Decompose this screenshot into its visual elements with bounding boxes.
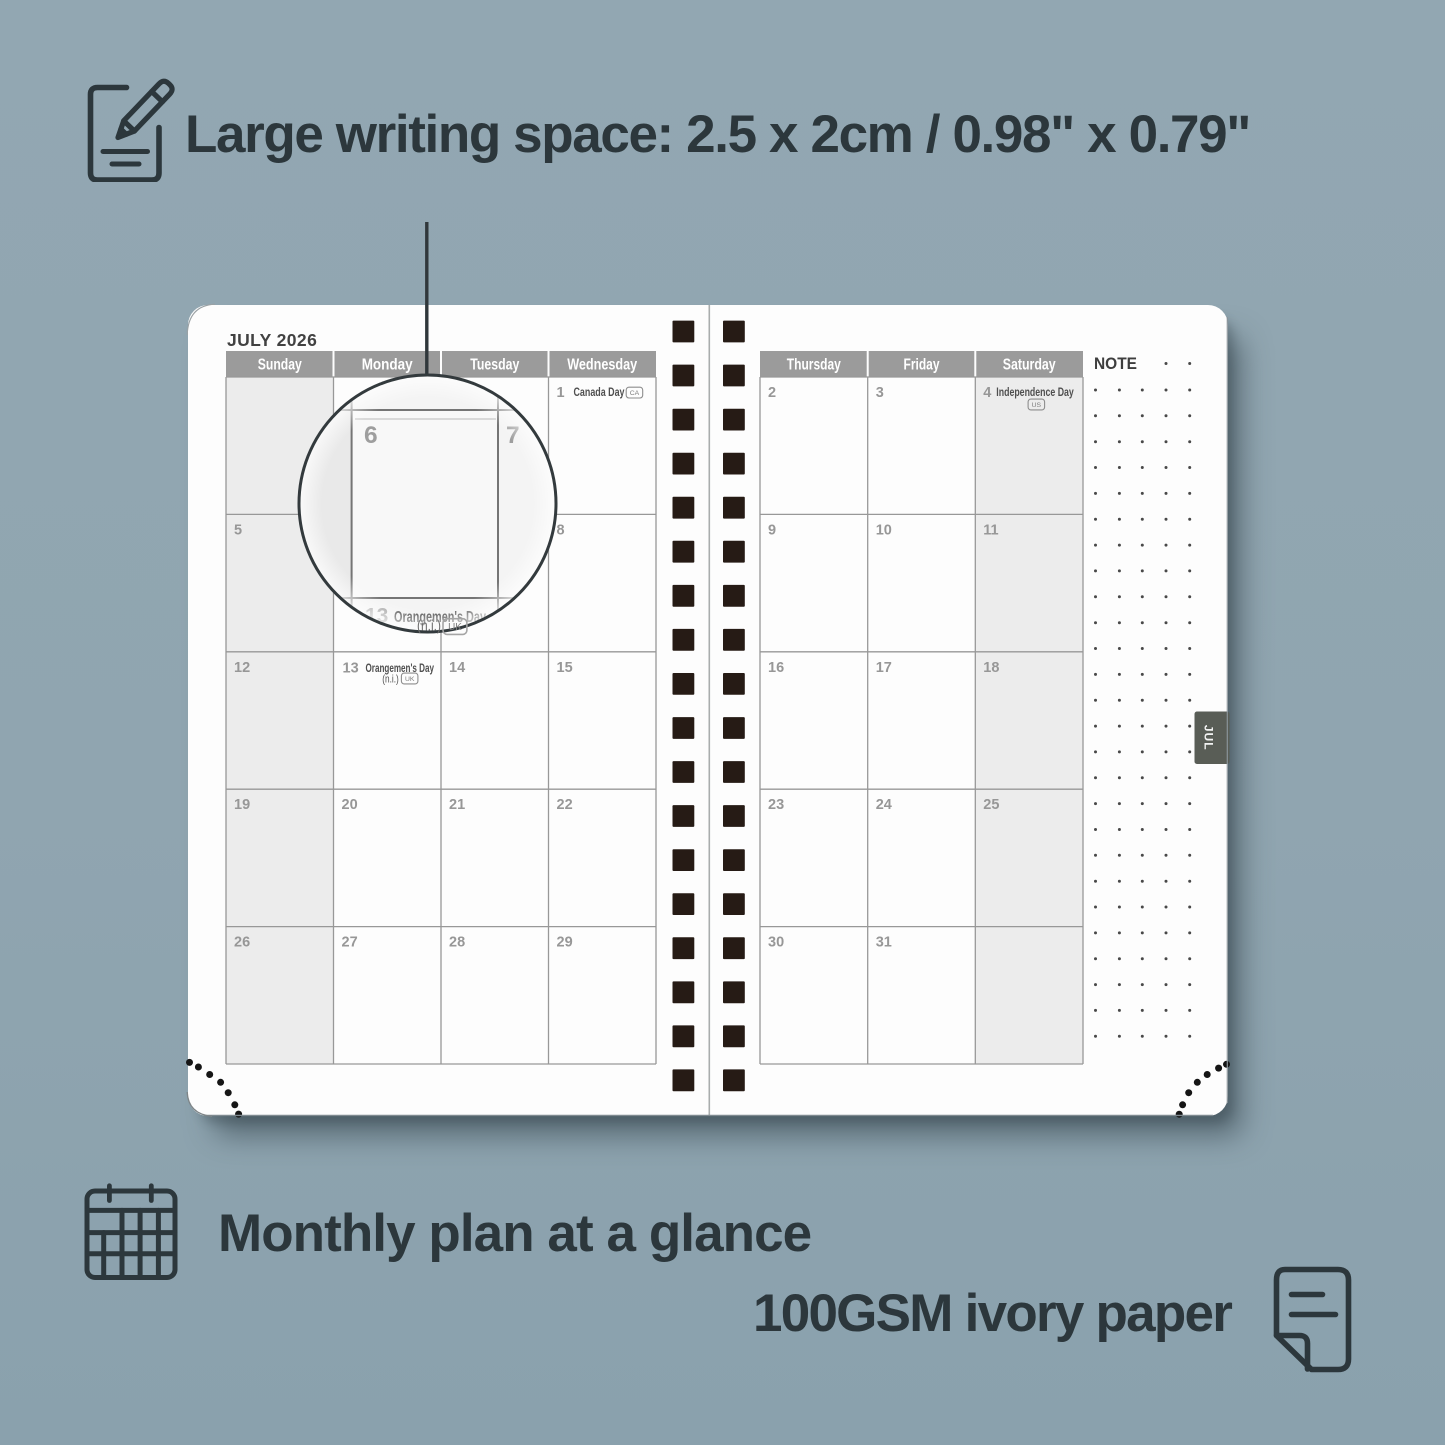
- svg-text:27: 27: [342, 935, 358, 951]
- svg-text:1: 1: [557, 385, 565, 401]
- svg-text:(n.i.): (n.i.): [417, 618, 441, 635]
- svg-text:24: 24: [876, 797, 892, 813]
- svg-text:22: 22: [557, 797, 573, 813]
- svg-text:16: 16: [768, 660, 784, 676]
- svg-text:Friday: Friday: [904, 357, 940, 374]
- svg-text:30: 30: [768, 935, 784, 951]
- svg-text:Orangemen's Day: Orangemen's Day: [366, 663, 435, 675]
- svg-text:9: 9: [768, 522, 776, 538]
- svg-text:(n.i.): (n.i.): [382, 673, 399, 685]
- svg-text:8: 8: [557, 522, 565, 538]
- svg-text:Monday: Monday: [362, 357, 413, 374]
- svg-text:26: 26: [234, 935, 250, 951]
- svg-text:Wednesday: Wednesday: [567, 357, 637, 374]
- svg-text:2: 2: [768, 385, 776, 401]
- svg-text:JULY 2026: JULY 2026: [227, 330, 317, 350]
- svg-text:21: 21: [449, 797, 465, 813]
- svg-text:4: 4: [983, 385, 991, 401]
- svg-text:20: 20: [342, 797, 358, 813]
- svg-text:17: 17: [876, 660, 892, 676]
- svg-text:Thursday: Thursday: [787, 357, 841, 374]
- svg-text:UK: UK: [448, 622, 462, 633]
- svg-text:23: 23: [768, 797, 784, 813]
- svg-text:NOTE: NOTE: [1094, 355, 1137, 373]
- svg-text:25: 25: [983, 797, 999, 813]
- svg-text:12: 12: [234, 660, 250, 676]
- svg-text:18: 18: [983, 660, 999, 676]
- svg-text:13: 13: [343, 660, 359, 676]
- svg-text:28: 28: [449, 935, 465, 951]
- svg-text:5: 5: [234, 522, 242, 538]
- svg-text:31: 31: [876, 935, 892, 951]
- svg-text:3: 3: [876, 385, 884, 401]
- svg-text:Independence Day: Independence Day: [996, 385, 1074, 399]
- svg-text:UK: UK: [405, 676, 415, 683]
- svg-text:11: 11: [983, 522, 998, 538]
- svg-text:Sunday: Sunday: [258, 357, 302, 374]
- svg-text:Saturday: Saturday: [1003, 357, 1056, 374]
- svg-text:US: US: [1032, 402, 1042, 409]
- svg-text:19: 19: [234, 797, 250, 813]
- svg-text:CA: CA: [630, 390, 640, 397]
- svg-text:15: 15: [557, 660, 573, 676]
- svg-text:Tuesday: Tuesday: [470, 357, 519, 374]
- svg-text:JUL: JUL: [1202, 725, 1216, 751]
- svg-text:Canada Day: Canada Day: [574, 385, 625, 399]
- svg-text:14: 14: [449, 660, 465, 676]
- svg-text:10: 10: [876, 522, 892, 538]
- svg-text:29: 29: [557, 935, 573, 951]
